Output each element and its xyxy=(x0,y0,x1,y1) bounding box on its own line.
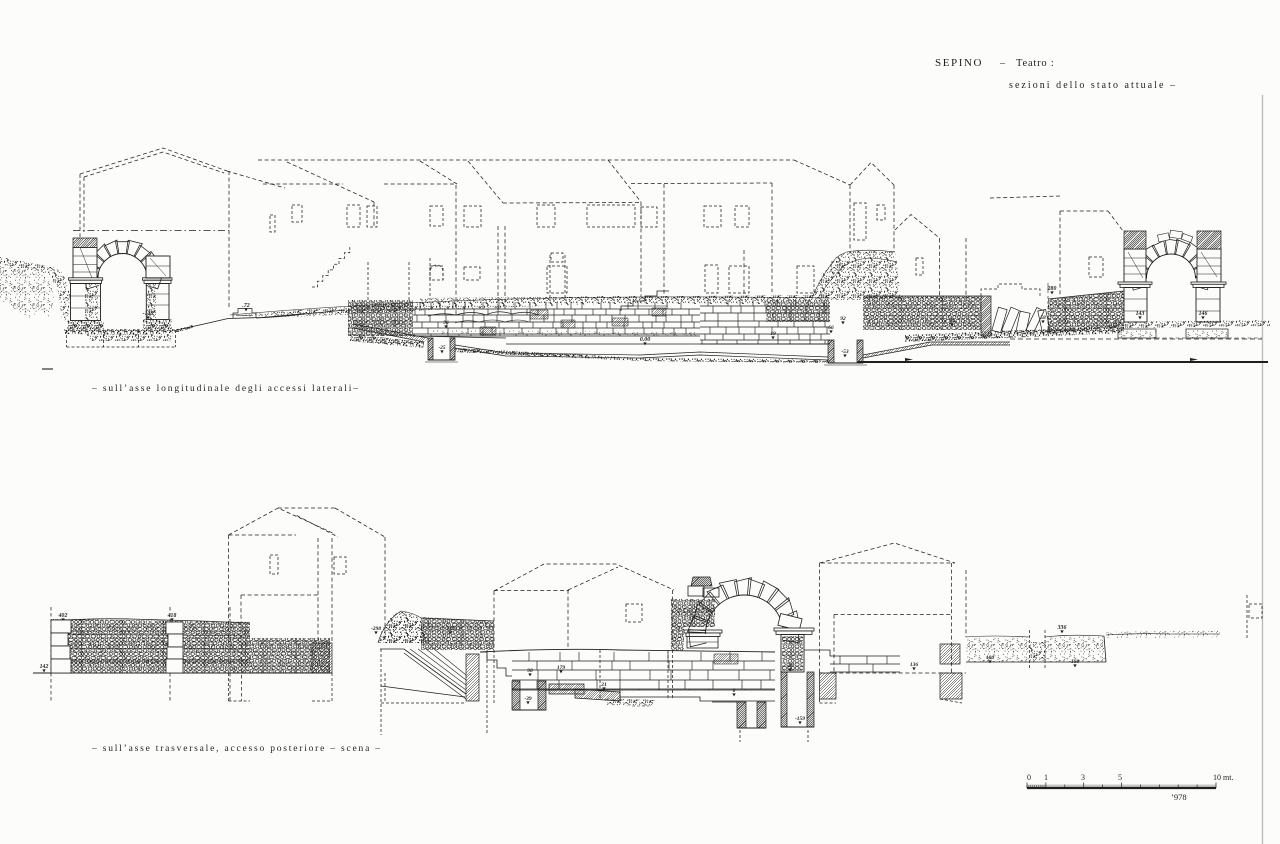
svg-text:136: 136 xyxy=(910,662,919,668)
svg-text:402: 402 xyxy=(58,613,68,619)
svg-text:-39: -39 xyxy=(524,696,532,702)
svg-text:21: 21 xyxy=(600,682,607,688)
svg-text:-138: -138 xyxy=(143,311,154,317)
svg-text:0: 0 xyxy=(733,688,736,694)
svg-text:280: 280 xyxy=(1047,286,1057,292)
svg-text:-298: -298 xyxy=(371,626,381,632)
svg-text:– sull’asse trasversale, acce: – sull’asse trasversale, accesso posteri… xyxy=(91,744,380,754)
svg-text:142: 142 xyxy=(40,664,49,670)
svg-text:94: 94 xyxy=(949,318,955,324)
svg-text:92: 92 xyxy=(840,316,846,322)
svg-text:418: 418 xyxy=(167,613,177,619)
svg-text:0.00: 0.00 xyxy=(640,337,651,343)
svg-text:– sull’asse longitudinale de: – sull’asse longitudinale degli accessi … xyxy=(91,384,358,394)
svg-text:3: 3 xyxy=(1081,773,1085,782)
svg-text:Teatro :: Teatro : xyxy=(1016,58,1055,69)
svg-text:SEPINO: SEPINO xyxy=(935,57,983,69)
svg-text:–: – xyxy=(999,58,1006,69)
svg-text:sezioni dello stato attuale: sezioni dello stato attuale – xyxy=(1009,80,1176,91)
svg-text:.72: .72 xyxy=(242,303,249,309)
svg-text:-53: -53 xyxy=(841,349,849,355)
svg-text:58: 58 xyxy=(1040,315,1046,321)
svg-text:143: 143 xyxy=(1136,311,1145,317)
svg-text:’978: ’978 xyxy=(1171,792,1187,802)
svg-text:66: 66 xyxy=(828,325,834,331)
svg-text:98: 98 xyxy=(527,668,533,674)
svg-text:186: 186 xyxy=(986,655,995,661)
svg-text:-159: -159 xyxy=(795,716,805,722)
svg-text:19: 19 xyxy=(770,331,776,337)
svg-text:28: 28 xyxy=(786,663,793,669)
svg-text:318: 318 xyxy=(445,626,455,632)
svg-text:160: 160 xyxy=(1071,659,1080,665)
svg-text:146: 146 xyxy=(1199,311,1208,317)
svg-text:-25: -25 xyxy=(438,345,446,351)
svg-text:10 mt.: 10 mt. xyxy=(1213,773,1233,782)
svg-text:1: 1 xyxy=(1044,773,1048,782)
svg-text:336: 336 xyxy=(1057,625,1067,631)
svg-text:0: 0 xyxy=(1027,773,1031,782)
svg-text:179: 179 xyxy=(557,665,566,671)
svg-text:96: 96 xyxy=(443,320,449,326)
svg-text:5: 5 xyxy=(1118,773,1122,782)
